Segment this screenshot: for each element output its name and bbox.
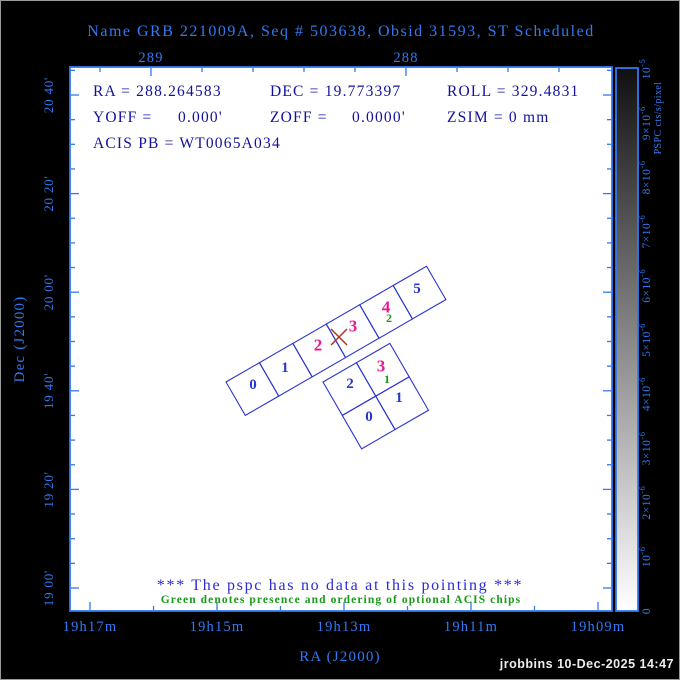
info-yoff-value: 0.000' xyxy=(178,109,223,126)
colorbar-tick-label: 7×10-6 xyxy=(637,215,653,249)
top-axis-tick-label: 289 xyxy=(138,50,163,66)
acis-s-chip-label-5: 5 xyxy=(413,281,421,297)
acis-i-chip-label-optional-1: 1 xyxy=(384,372,390,386)
x-axis-title: RA (J2000) xyxy=(299,649,381,665)
left-axis-tick-label: 20 40' xyxy=(41,77,56,113)
colorbar-tick-label: 9×10-6 xyxy=(637,106,653,140)
info-zoff-value: 0.0000' xyxy=(352,109,406,126)
left-axis-tick-label: 19 00' xyxy=(41,570,56,606)
info-yoff-label: YOFF = xyxy=(93,109,152,126)
colorbar-title: PSPC cts/s/pixel xyxy=(653,82,664,155)
bottom-axis-tick-label: 19h09m xyxy=(571,619,626,635)
colorbar-tick-label: 6×10-6 xyxy=(637,269,653,303)
acis-s-chip-label-3: 3 xyxy=(349,317,358,336)
left-axis-tick-label: 19 40' xyxy=(41,373,56,409)
acis-s-chip-label-0: 0 xyxy=(249,377,257,393)
footer-user-timestamp: jrobbins 10-Dec-2025 14:47 xyxy=(500,657,674,671)
info-zoff-label: ZOFF = xyxy=(270,109,328,126)
info-zsim: ZSIM = 0 mm xyxy=(447,109,549,126)
colorbar-tick-label: 2×10-6 xyxy=(637,486,653,520)
colorbar-tick-label: 10-6 xyxy=(637,547,653,568)
pspc-colorbar xyxy=(616,68,638,611)
green-chips-note: Green denotes presence and ordering of o… xyxy=(161,594,521,606)
left-axis-tick-label: 20 20' xyxy=(41,175,56,211)
colorbar-tick-label: 4×10-6 xyxy=(637,377,653,411)
colorbar-tick-label: 3×10-6 xyxy=(637,431,653,465)
acis-i-chip-label-2: 2 xyxy=(346,376,354,392)
bottom-axis-tick-label: 19h11m xyxy=(444,619,498,635)
top-axis-tick-label: 288 xyxy=(393,50,418,66)
pspc-warning-text: *** The pspc has no data at this pointin… xyxy=(157,577,523,594)
bottom-axis-tick-label: 19h15m xyxy=(190,619,245,635)
bottom-axis-tick-label: 19h17m xyxy=(63,619,118,635)
colorbar-tick-label: 5×10-6 xyxy=(637,323,653,357)
info-ra: RA = 288.264583 xyxy=(93,83,222,100)
acis-s-chip-label-optional-2: 2 xyxy=(386,311,392,325)
acis-i-chip-label-0: 0 xyxy=(365,409,373,425)
plot-title: Name GRB 221009A, Seq # 503638, Obsid 31… xyxy=(87,23,594,40)
acis-s-chip-label-2: 2 xyxy=(314,336,323,355)
left-axis-tick-label: 20 00' xyxy=(41,274,56,310)
bottom-axis-tick-label: 19h13m xyxy=(317,619,372,635)
colorbar-tick-label: 0 xyxy=(641,608,653,614)
left-axis-tick-label: 19 20' xyxy=(41,471,56,507)
info-dec: DEC = 19.773397 xyxy=(270,83,401,100)
colorbar-tick-label: 10-5 xyxy=(637,59,653,80)
colorbar-tick-label: 8×10-6 xyxy=(637,160,653,194)
observation-plot: Name GRB 221009A, Seq # 503638, Obsid 31… xyxy=(0,0,680,680)
acis-i-chip-label-1: 1 xyxy=(395,390,403,406)
y-axis-title: Dec (J2000) xyxy=(12,296,28,383)
info-acis-pb: ACIS PB = WT0065A034 xyxy=(93,135,281,152)
info-roll: ROLL = 329.4831 xyxy=(447,83,580,100)
acis-s-chip-label-1: 1 xyxy=(281,360,289,376)
